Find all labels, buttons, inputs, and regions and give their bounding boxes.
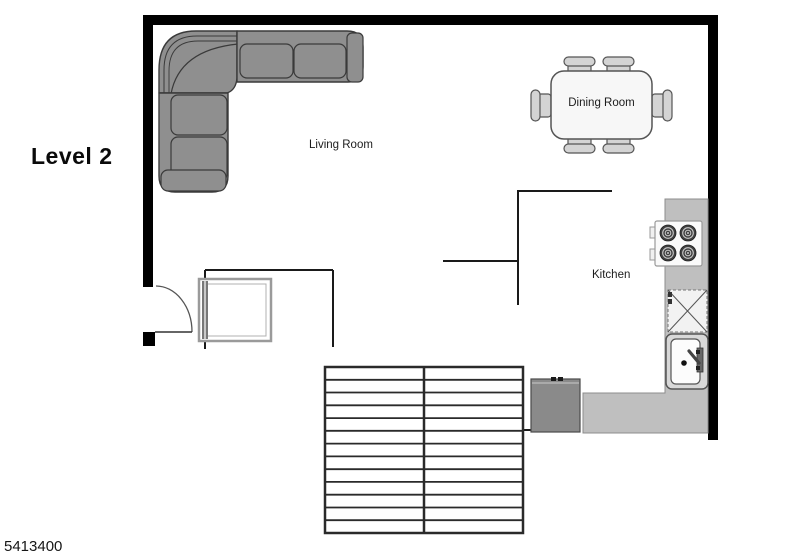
cabinet-x <box>668 290 707 332</box>
cabinet-hinge <box>668 299 672 304</box>
kitchen-fixtures <box>531 199 708 433</box>
dishwasher-body <box>531 379 580 432</box>
sink <box>666 334 708 389</box>
dining-chair-back <box>564 144 595 153</box>
dining-chair-back <box>531 90 540 121</box>
door-swing-arc <box>156 286 192 332</box>
burner-icon <box>680 225 696 241</box>
sectional-sofa <box>159 31 363 192</box>
sofa-bottom-armrest <box>161 170 226 191</box>
wall-right <box>708 15 718 440</box>
dishwasher-clip <box>558 377 563 381</box>
sink-drain <box>681 360 687 366</box>
stove <box>650 221 702 266</box>
living-room-label: Living Room <box>309 139 373 151</box>
burner-icon <box>660 225 676 241</box>
wall-left <box>143 15 153 287</box>
faucet-handle <box>696 350 700 354</box>
faucet-handle <box>696 366 700 370</box>
kitchen-wall <box>443 190 612 305</box>
dining-room-label: Dining Room <box>551 97 652 109</box>
wall-left-door-stub <box>143 332 155 346</box>
dining-chair-back <box>603 144 634 153</box>
kitchen-label: Kitchen <box>592 269 630 281</box>
dishwasher <box>531 377 580 432</box>
entry-door <box>155 286 192 332</box>
floorplan-page: Level 2 Living Room Dining Room Kitchen … <box>0 0 800 560</box>
dining-chair-back <box>603 57 634 66</box>
burner-icon <box>660 245 676 261</box>
sofa-corner-section <box>159 31 237 93</box>
dining-chair-back <box>663 90 672 121</box>
wall-top <box>143 15 718 25</box>
listing-id: 5413400 <box>4 538 62 555</box>
sofa-right-armrest <box>347 33 363 82</box>
closet-outer <box>199 279 271 341</box>
staircase <box>325 367 523 533</box>
cabinet-hinge <box>668 292 672 297</box>
burner-icon <box>680 245 696 261</box>
sofa-top-section <box>237 31 363 82</box>
dishwasher-clip <box>551 377 556 381</box>
closet <box>199 279 271 341</box>
level-label: Level 2 <box>31 143 113 170</box>
floorplan-canvas <box>0 0 800 560</box>
dining-chair-back <box>564 57 595 66</box>
